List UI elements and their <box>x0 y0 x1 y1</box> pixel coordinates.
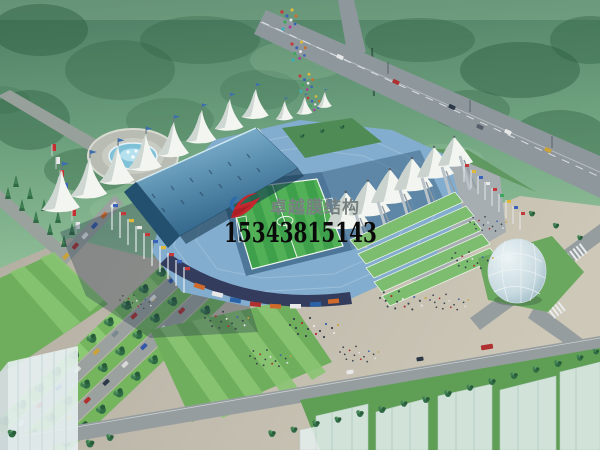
stadium-aerial-rendering: 卓越膜结构 15343815143 <box>0 0 600 450</box>
scene-canvas <box>0 0 600 450</box>
